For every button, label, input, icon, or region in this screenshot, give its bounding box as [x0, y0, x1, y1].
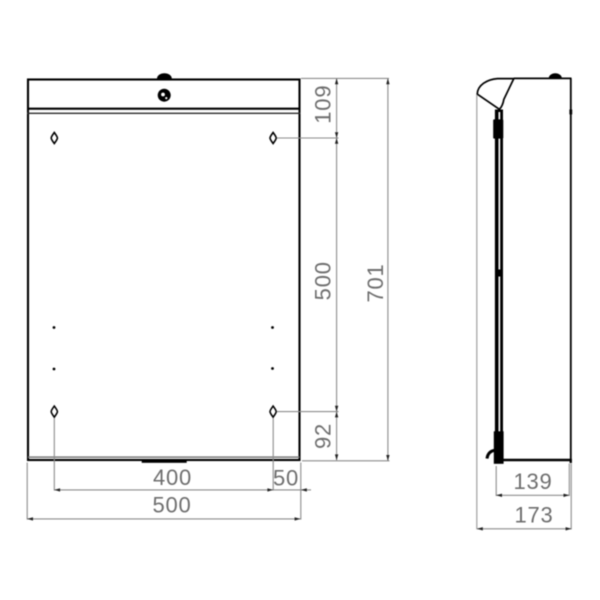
- svg-text:109: 109: [311, 85, 336, 124]
- svg-text:139: 139: [513, 469, 552, 494]
- svg-text:400: 400: [153, 465, 192, 490]
- svg-text:92: 92: [311, 423, 336, 449]
- svg-text:173: 173: [514, 502, 553, 527]
- svg-text:50: 50: [273, 465, 299, 490]
- svg-text:500: 500: [311, 261, 336, 300]
- svg-text:500: 500: [152, 492, 191, 517]
- svg-text:701: 701: [363, 263, 388, 302]
